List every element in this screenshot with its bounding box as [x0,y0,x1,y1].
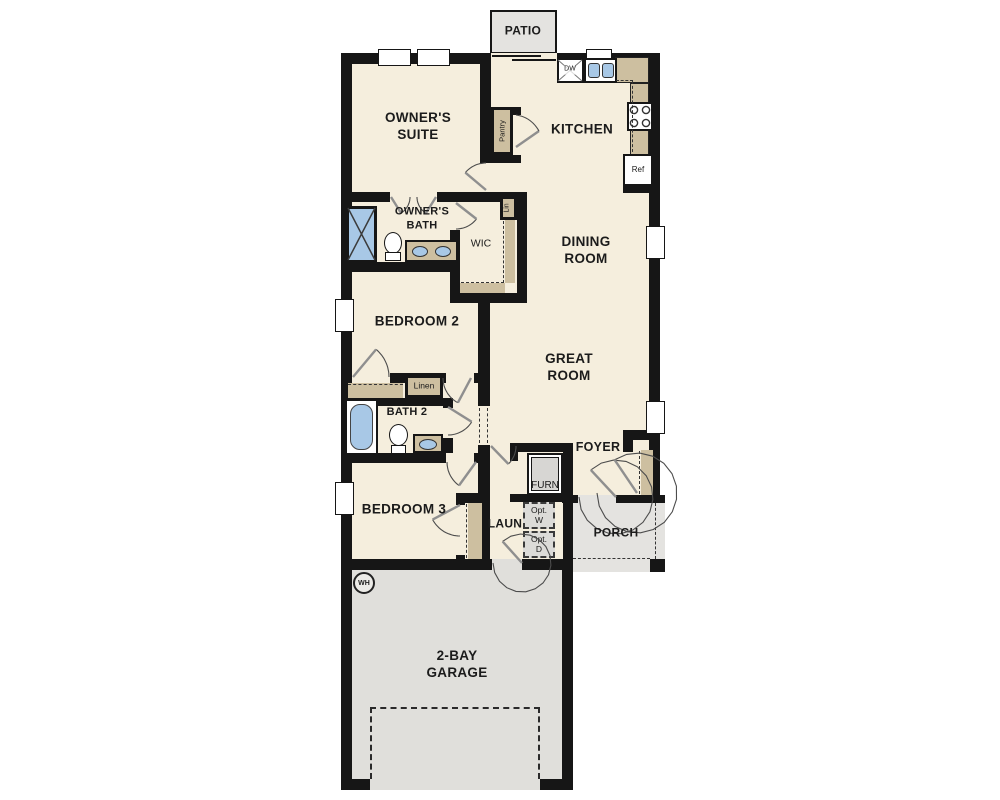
wall-pantry-jamb [513,107,521,115]
wall-bath2-right-a [443,398,453,408]
wall-foyer-closet-left [623,430,633,452]
toilet-bath2-tank [391,445,406,454]
bedroom2-closet-shelf [348,383,403,398]
toilet-owners-tank [385,252,401,261]
linen-label: Linen [414,381,435,392]
owners-suite-label: OWNER'S SUITE [374,110,462,144]
wall-bottom-b [522,559,562,570]
patio-door-opening [491,53,557,64]
window-suite-1 [378,49,411,66]
wic-dash-h [461,282,504,283]
dining-room-label: DINING ROOM [551,234,621,268]
cased-opening-dash-1 [479,408,480,443]
opt-dryer-label: Opt. D [529,535,549,555]
wic-shelf-bottom [460,283,505,293]
floor-plan: Opt. W Opt. D WH PATIO OWNER'S SUITE [0,0,1000,800]
wall-bottom-a [341,559,492,570]
toilet-bath2-bowl [389,424,408,446]
wall-divider-upper [478,303,490,408]
owners-sink-1 [412,246,428,257]
garage-wall-left [341,570,352,790]
water-heater: WH [353,572,375,594]
window-bedroom3 [335,482,354,515]
foyer-closet-shelf [641,450,653,495]
wall-bath2-right-b [443,438,453,453]
bath2-label: BATH 2 [387,406,428,420]
bedroom3-closet-shelf [468,503,482,559]
window-bedroom2 [335,299,354,332]
garage-door-dash [370,707,540,779]
opt-washer-box: Opt. W [523,502,555,529]
toilet-owners-bowl [384,232,402,254]
bedroom3-label: BEDROOM 3 [362,502,446,519]
sink-basin-1 [588,63,600,78]
opt-dryer-box: Opt. D [523,531,555,558]
wall-closet3-left-b [456,555,465,560]
porch-wall-b [616,495,665,503]
porch-post-left [562,559,573,572]
porch-dash-v [655,503,656,559]
closet3-dash [466,504,467,558]
bedroom2-label: BEDROOM 2 [375,314,459,331]
stove [627,102,653,131]
counter-dash-v [632,81,633,152]
window-suite-2 [417,49,450,66]
laundry-label: LAUN [488,517,523,532]
bath2-sink [419,439,437,450]
shower [346,206,377,263]
garage-label: 2-BAY GARAGE [422,648,492,682]
counter-dash-h [616,80,633,81]
foyer-closet-dash [639,451,640,494]
porch-dash-h [573,558,650,559]
wall-bath-bottom [341,262,458,272]
water-heater-label: WH [358,580,370,587]
owners-bath-label: OWNER'S BATH [388,205,456,233]
tub [350,404,373,450]
wall-suite-right [480,64,491,162]
garage-wall-right [562,570,573,790]
wall-suite-bottom-a [341,192,390,202]
furnace-label: FURN [531,480,559,493]
dishwasher-label: DW [563,66,577,75]
garage-wall-bottom-a [341,779,370,790]
foyer-label: FOYER [576,440,621,456]
porch-post-right [650,559,665,572]
refrigerator-label: Ref [632,165,644,175]
wic-label: WIC [471,237,491,250]
wall-closet3-left-a [456,493,465,505]
wic-shelf-right [505,220,515,283]
pantry-label: Pantry [497,120,506,142]
closet2-dash [348,384,403,385]
window-dining [646,226,665,259]
garage-wall-bottom-b [540,779,573,790]
sink-basin-2 [602,63,614,78]
opt-washer-label: Opt. W [529,506,549,526]
patio-label: PATIO [505,24,541,39]
wall-bed2-bottom-b [474,373,490,383]
owners-sink-2 [435,246,451,257]
porch-label: PORCH [594,526,639,541]
wall-bed3-top-b [474,453,490,463]
wall-wic-bottom [450,293,527,303]
great-room-label: GREAT ROOM [537,351,601,385]
wall-furn-left-stub [510,443,518,461]
wall-pantry-bottom [480,155,521,163]
window-great [646,401,665,434]
wall-furn-bottom [510,494,563,502]
lin-label: Lin [504,203,513,212]
kitchen-label: KITCHEN [551,122,613,139]
cased-opening-dash-2 [487,408,488,443]
wic-dash-v [503,221,504,283]
wall-furn-right [563,443,573,560]
wall-wic-right [517,192,527,303]
